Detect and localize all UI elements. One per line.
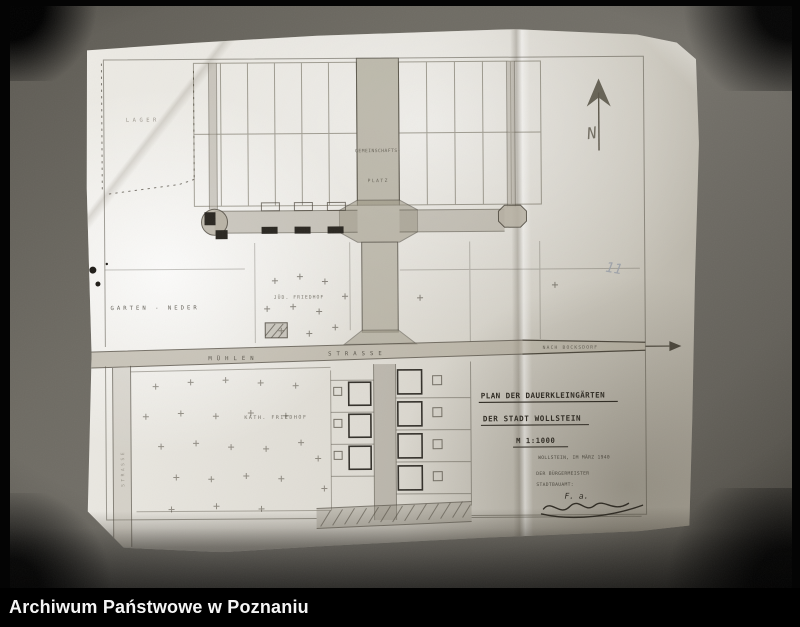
issuer-line1: DER BÜRGERMEISTER [536, 470, 589, 477]
nach-bocksdorf-label: NACH BOCKSDORF [543, 345, 599, 351]
jued-friedhof-label: JÜD. FRIEDHOF [274, 293, 325, 300]
gemeinschaftsplatz-label-line1: GEMEINSCHAFTS- [355, 148, 401, 154]
grave-cross-marks [143, 376, 328, 512]
kath-friedhof-label: KATH. FRIEDHOF [244, 415, 307, 421]
side-street-label: STRASSE [120, 450, 126, 487]
title-line1: PLAN DER DAUERKLEINGÄRTEN [481, 391, 605, 401]
strasse-label: STRASSE [328, 351, 387, 357]
place-date: WOLLSTEIN, IM MÄRZ 1940 [538, 453, 610, 461]
archive-photo-frame: LAGER [0, 0, 800, 627]
plan-drawing: LAGER [83, 28, 702, 553]
muehlenstrasse [88, 340, 522, 368]
title-scale: M 1:1000 [516, 436, 555, 445]
issuer-line2: STADTBAUAMT: [536, 482, 574, 488]
lower-plots [331, 361, 472, 520]
title-block: PLAN DER DAUERKLEINGÄRTEN DER STADT WOLL… [479, 390, 643, 518]
muehlen-label: MÜHLEN [208, 355, 258, 362]
signature-flourish [541, 503, 642, 518]
map-paper-sheet: LAGER [83, 28, 702, 553]
catholic-cemetery [131, 367, 332, 512]
signature-initials: F. a. [564, 492, 588, 501]
bottom-hatched-road [316, 501, 471, 528]
archive-caption-bar: Archiwum Państwowe w Poznaniu [0, 588, 800, 627]
lager-label: LAGER [126, 118, 160, 124]
garten-neder-label: GARTEN - NEDER [111, 305, 200, 312]
archive-name: Archiwum Państwowe w Poznaniu [0, 597, 309, 618]
jewish-cemetery [264, 272, 558, 338]
page-number-annotation: 11 [604, 260, 623, 279]
gemeinschaftsplatz-label-line2: PLATZ [368, 178, 389, 184]
copy-board-background: LAGER [10, 6, 792, 588]
title-line2: DER STADT WOLLSTEIN [483, 414, 581, 424]
grave-cross-marks [264, 272, 558, 337]
lager-dotted-boundary [101, 63, 194, 194]
north-letter: N [585, 123, 599, 143]
octagon-plaza [498, 205, 526, 227]
north-arrow: N [584, 78, 611, 150]
